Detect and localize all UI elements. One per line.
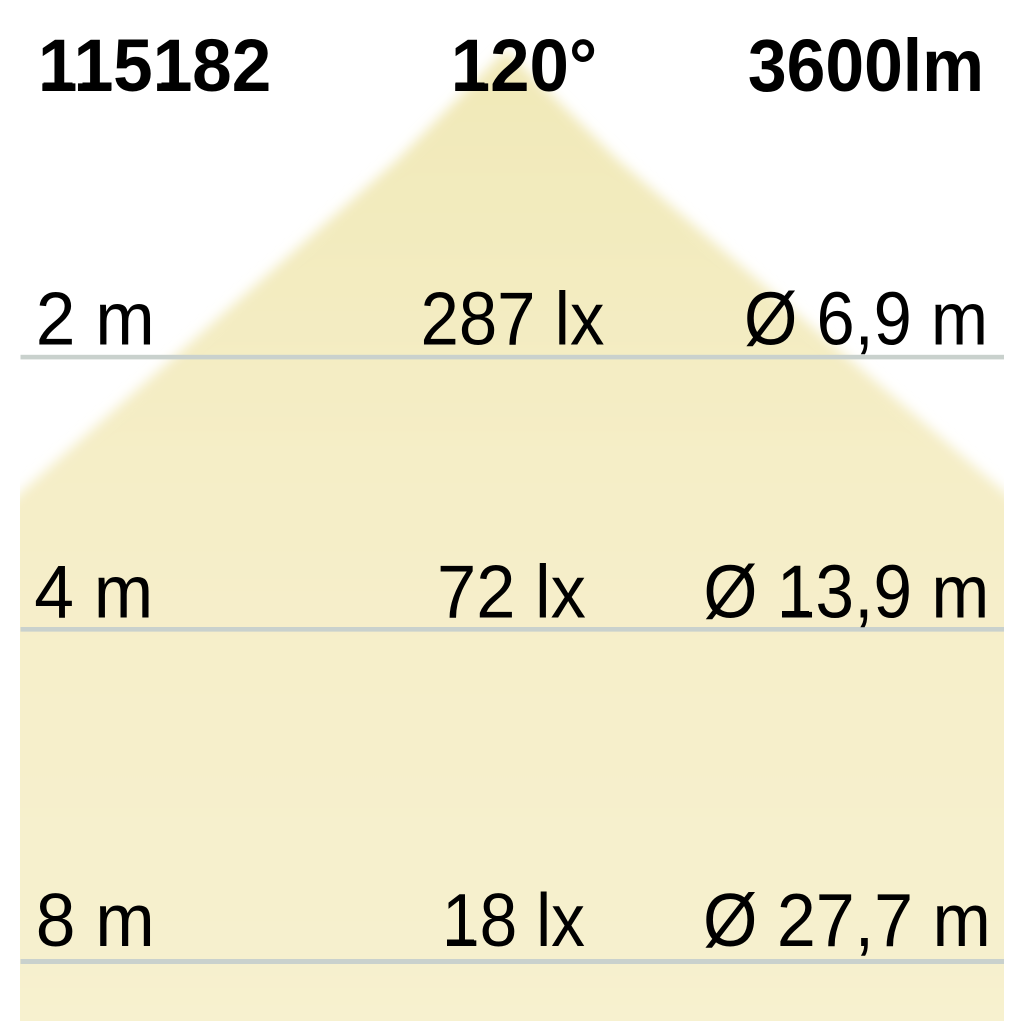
svg-text:287 lx: 287 lx	[421, 278, 605, 361]
svg-text:18 lx: 18 lx	[442, 879, 585, 963]
svg-text:120°: 120°	[451, 25, 597, 108]
svg-text:2 m: 2 m	[36, 277, 155, 361]
svg-text:3600lm: 3600lm	[748, 25, 984, 107]
svg-text:8 m: 8 m	[36, 878, 155, 962]
svg-text:Ø 27,7 m: Ø 27,7 m	[703, 879, 991, 963]
svg-text:72 lx: 72 lx	[437, 551, 586, 634]
svg-text:4 m: 4 m	[34, 550, 153, 634]
svg-text:115182: 115182	[38, 25, 271, 108]
svg-text:Ø 13,9 m: Ø 13,9 m	[703, 551, 989, 634]
svg-text:Ø 6,9 m: Ø 6,9 m	[744, 278, 988, 361]
